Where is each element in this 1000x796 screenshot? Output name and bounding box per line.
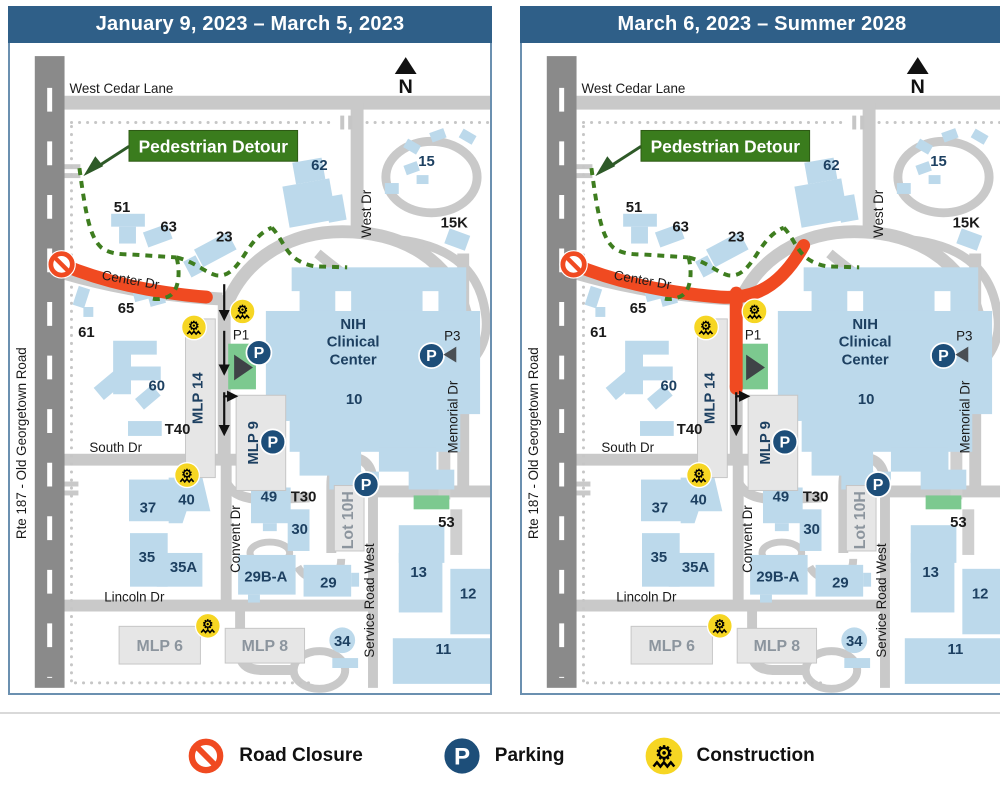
construction-icon [175, 463, 200, 488]
map-frame: Pedestrian Detour N West Cedar Lane Rte … [520, 43, 1000, 695]
building-53-green-block [414, 495, 450, 509]
parking-label: MLP 6 [137, 638, 184, 655]
building-label: 53 [950, 515, 967, 531]
parking-label: P3 [444, 329, 460, 344]
building-label: 29B-A [756, 570, 799, 586]
svg-text:N: N [911, 76, 925, 98]
parking-icon-p3 [419, 343, 444, 368]
construction-icon [707, 613, 732, 638]
building-label: 35A [170, 560, 198, 576]
building-label: 53 [438, 515, 455, 531]
building-label: 13 [410, 565, 427, 581]
building-label: 60 [661, 378, 678, 394]
building-label: 29B-A [244, 570, 287, 586]
legend-label: Construction [697, 745, 815, 767]
parking-label: MLP 6 [649, 638, 696, 655]
street-label: Service Road West [874, 543, 889, 658]
parking-label: MLP 14 [190, 372, 206, 424]
map-panel-jan-mar-2023: January 9, 2023 – March 5, 2023 [8, 6, 492, 695]
building-label: 49 [773, 489, 790, 505]
campus-map: Pedestrian Detour N West Cedar Lane Rte … [10, 43, 490, 693]
street-label: Memorial Dr [445, 380, 460, 453]
building-label: 40 [690, 492, 707, 508]
road-closure-icon [559, 250, 588, 279]
building-label: 51 [114, 200, 131, 216]
nih-label: NIH [852, 317, 878, 333]
construction-icon [230, 299, 255, 324]
street-label: Lincoln Dr [104, 590, 165, 605]
street-label: Lincoln Dr [616, 590, 677, 605]
parking-icon-mlp9 [260, 429, 285, 454]
building-label: 30 [803, 522, 820, 538]
nih-label: Center [330, 353, 377, 369]
street-label: South Dr [601, 440, 654, 455]
detour-label: Pedestrian Detour [651, 136, 801, 156]
parking-icon-p3 [931, 343, 956, 368]
building-label: 34 [334, 634, 351, 650]
building-label: T40 [165, 422, 191, 438]
road-closure-icon [185, 733, 227, 779]
legend-separator [0, 712, 1000, 714]
legend-item-construction: Construction [643, 733, 815, 779]
building-label: 15K [441, 216, 469, 232]
nih-label: Clinical [327, 335, 380, 351]
building-label: 10 [346, 392, 363, 408]
parking-icon [441, 733, 483, 779]
building-label: 49 [261, 489, 278, 505]
building-label: 65 [118, 301, 135, 317]
street-label: West Cedar Lane [70, 81, 174, 96]
street-label: Convent Dr [228, 505, 243, 573]
construction-icon [687, 463, 712, 488]
construction-icon [182, 315, 207, 340]
parking-label: P3 [956, 329, 972, 344]
parking-icon-lot10h [866, 472, 891, 497]
north-arrow-icon: N [907, 57, 929, 98]
street-label: Rte 187 - Old Georgetown Road [14, 347, 29, 539]
old-georgetown-road [35, 56, 65, 688]
legend-item-parking: Parking [441, 733, 565, 779]
building-label: 62 [823, 158, 840, 174]
parking-label: Lot 10H [340, 491, 357, 549]
building-label: 34 [846, 634, 863, 650]
panel-title: March 6, 2023 – Summer 2028 [520, 6, 1000, 43]
pedestrian-detour-callout: Pedestrian Detour [595, 130, 809, 176]
p1-entrance [740, 344, 768, 390]
building-label: 61 [590, 325, 607, 341]
building-label: 10 [858, 392, 875, 408]
building-label: 11 [436, 642, 452, 658]
street-label: Rte 187 - Old Georgetown Road [526, 347, 541, 539]
detour-arrow-icon [595, 156, 615, 176]
parking-label: MLP 9 [758, 421, 774, 465]
parking-label: P1 [233, 328, 249, 343]
building-label: 40 [178, 492, 195, 508]
construction-icon [195, 613, 220, 638]
building-label: 61 [78, 325, 95, 341]
legend: Road Closure Parking Construction [0, 733, 1000, 779]
parking-icon-lot10h [354, 472, 379, 497]
parking-label: Lot 10H [852, 491, 869, 549]
building-label: 12 [972, 587, 989, 603]
parking-label: P1 [745, 328, 761, 343]
map-frame: Pedestrian Detour N West Cedar Lane Rte … [8, 43, 492, 695]
road-closure-icon [47, 250, 76, 279]
campus-map: Pedestrian Detour N West Cedar Lane Rte … [522, 43, 1000, 693]
building-label: 30 [291, 522, 308, 538]
street-label: West Dr [871, 189, 886, 238]
building-label: 60 [149, 378, 166, 394]
street-label: West Cedar Lane [582, 81, 686, 96]
parking-label: MLP 14 [702, 372, 718, 424]
building-label: 29 [320, 576, 337, 592]
building-label: 13 [922, 565, 939, 581]
building-label: 63 [672, 220, 689, 236]
building-label: 37 [140, 500, 157, 516]
building-label: 11 [948, 642, 964, 658]
building-label: 12 [460, 587, 477, 603]
building-label: 15 [930, 154, 947, 170]
building-label: 37 [652, 500, 669, 516]
pedestrian-detour-callout: Pedestrian Detour [83, 130, 297, 176]
old-georgetown-road [547, 56, 577, 688]
construction-icon [694, 315, 719, 340]
legend-label: Parking [495, 745, 565, 767]
panel-title: January 9, 2023 – March 5, 2023 [8, 6, 492, 43]
construction-icon [643, 733, 685, 779]
street-label: Convent Dr [740, 505, 755, 573]
building-label: 65 [630, 301, 647, 317]
building-label: 35A [682, 560, 710, 576]
nih-label: Center [842, 353, 889, 369]
building-53-green-block [926, 495, 962, 509]
parking-label: MLP 8 [754, 638, 801, 655]
legend-label: Road Closure [239, 745, 363, 767]
parking-label: MLP 9 [246, 421, 262, 465]
street-label: Service Road West [362, 543, 377, 658]
detour-arrow-icon [83, 156, 103, 176]
nih-label: NIH [340, 317, 366, 333]
building-label: 35 [139, 550, 156, 566]
legend-item-road-closure: Road Closure [185, 733, 363, 779]
street-label: South Dr [89, 440, 142, 455]
building-label: T40 [677, 422, 703, 438]
construction-icon [742, 299, 767, 324]
parking-icon-mlp9 [772, 429, 797, 454]
nih-label: Clinical [839, 335, 892, 351]
parking-icon-p1 [246, 340, 271, 365]
building-label: 23 [216, 230, 233, 246]
building-label: 63 [160, 220, 177, 236]
building-label: T30 [291, 489, 317, 505]
building-label: 15K [953, 216, 981, 232]
parking-label: MLP 8 [242, 638, 289, 655]
svg-text:N: N [399, 76, 413, 98]
building-label: 29 [832, 576, 849, 592]
map-panel-mar-2023-summer-2028: March 6, 2023 – Summer 2028 [520, 6, 1000, 695]
building-label: 35 [651, 550, 668, 566]
building-label: 15 [418, 154, 435, 170]
building-label: 23 [728, 230, 745, 246]
building-label: T30 [803, 489, 829, 505]
north-arrow-icon: N [395, 57, 417, 98]
detour-label: Pedestrian Detour [139, 136, 289, 156]
street-label: Memorial Dr [957, 380, 972, 453]
street-label: West Dr [359, 189, 374, 238]
building-label: 51 [626, 200, 643, 216]
building-label: 62 [311, 158, 328, 174]
